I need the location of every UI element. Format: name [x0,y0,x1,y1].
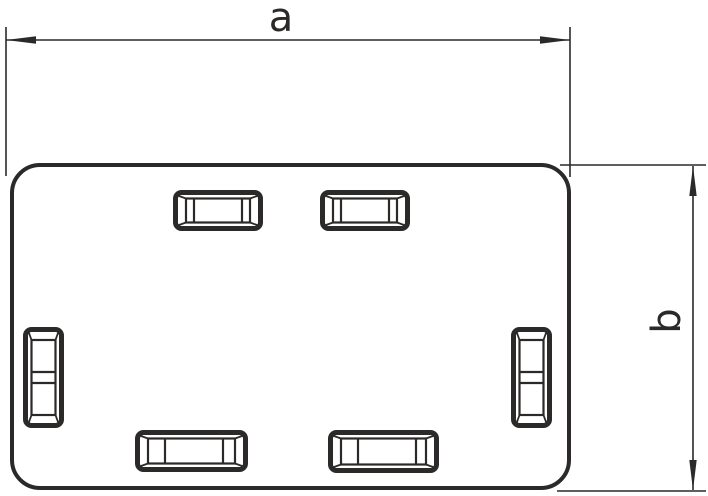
knockout-slot-top-right [323,193,408,229]
knockout-slot-bottom-left [138,433,246,470]
arrowhead-down-icon [689,460,696,490]
dimension-a-label: a [269,0,294,41]
knockout-slot-side-right [514,330,550,426]
drawing-canvas: a b [0,0,708,496]
part-outline [12,165,569,488]
knockout-slot-bottom-right [331,433,437,471]
knockout-slot-side-left [26,330,62,426]
arrowhead-left-icon [6,36,36,44]
arrowhead-right-icon [540,36,570,44]
dimension-b-label: b [644,308,690,333]
technical-drawing: a b [0,0,708,496]
knockout-slot-top-left [176,193,261,229]
dimension-b: b [557,165,706,491]
dimension-a: a [6,0,570,177]
arrowhead-up-icon [689,166,696,196]
